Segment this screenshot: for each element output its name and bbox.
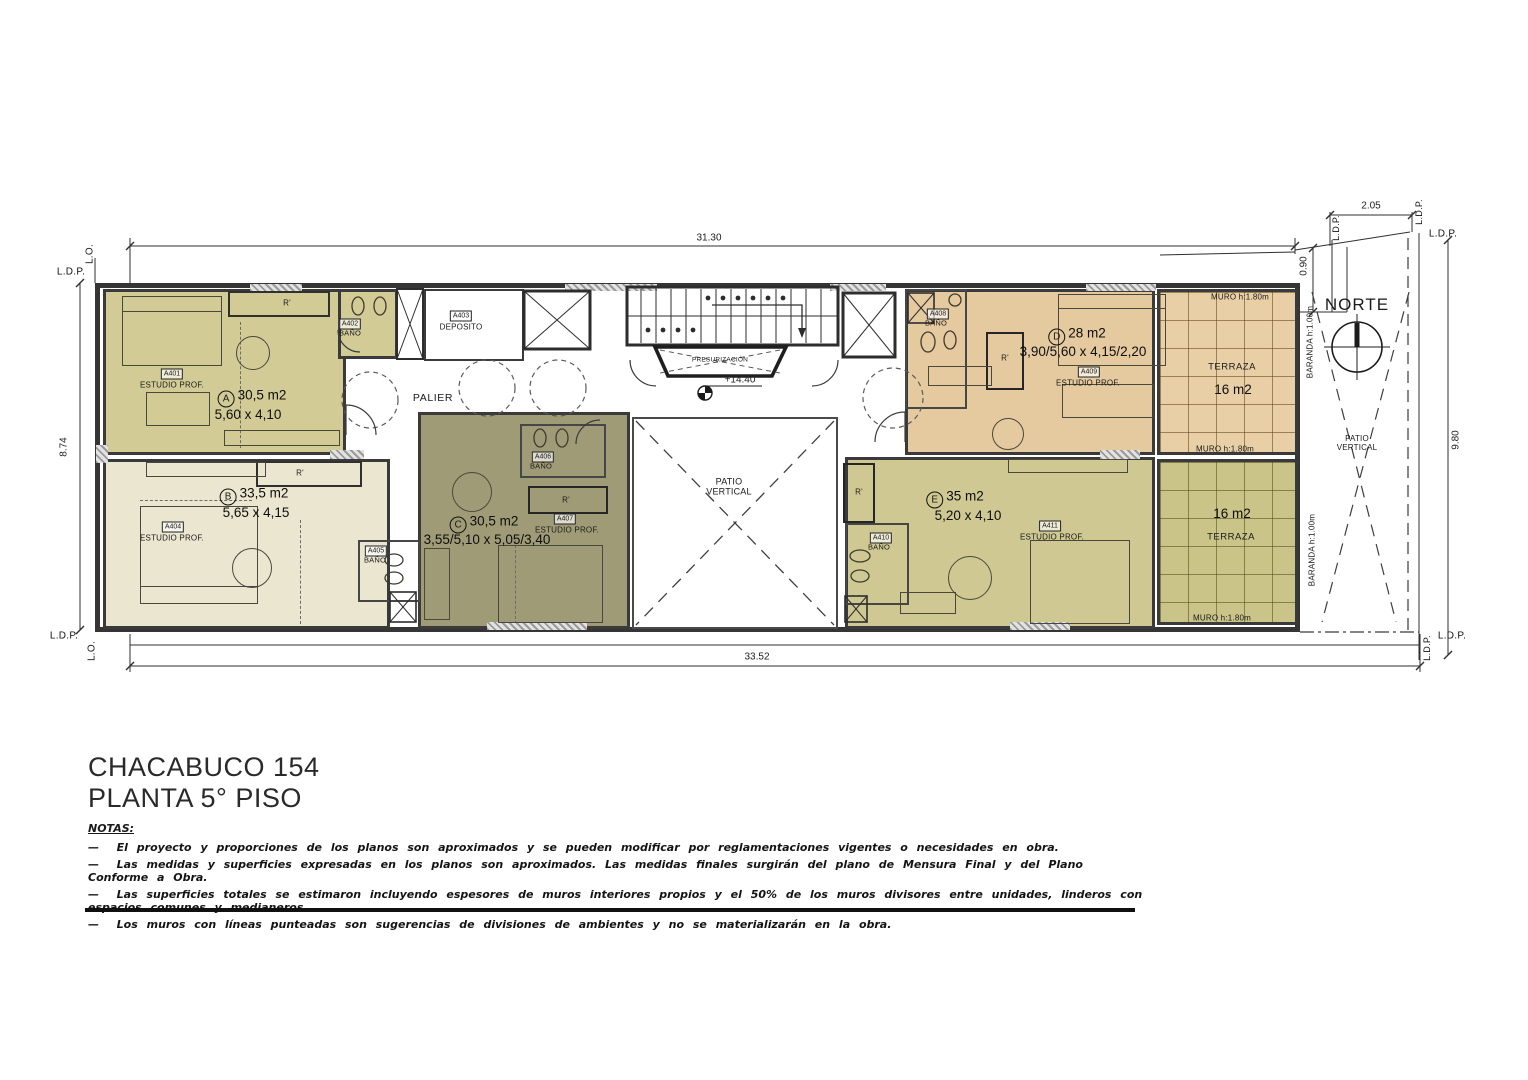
- unit-d-bath-partition: [905, 289, 967, 409]
- unit-b-closet: [256, 461, 362, 487]
- unit-d-dims: 3,90/5,60 x 4,15/2,20: [1020, 344, 1147, 360]
- table: [452, 472, 492, 512]
- project-address: CHACABUCO 154: [88, 752, 320, 783]
- lo-label-top-left: L.O.: [85, 244, 96, 264]
- patio-vertical-right-label: PATIO VERTICAL: [1328, 434, 1386, 452]
- unit-b-tag: A404: [162, 522, 184, 533]
- wall-hatch: [565, 284, 657, 291]
- tv-cabinet: [1008, 459, 1128, 473]
- muro-label-middle: MURO h:1.80m: [1196, 444, 1254, 453]
- unit-a-letter: A: [218, 391, 235, 408]
- unit-d-title: D28 m2: [1048, 325, 1106, 346]
- tv-cabinet: [146, 462, 266, 477]
- wall-hatch: [1100, 450, 1140, 459]
- table: [992, 418, 1024, 450]
- dim-left-height: 8.74: [59, 437, 70, 456]
- dashed-division: [300, 520, 301, 624]
- level-marker-label: +14.40: [725, 374, 756, 386]
- unit-e-letter: E: [926, 492, 943, 509]
- baranda-label-top: BARANDA h:1.00m: [1306, 306, 1315, 378]
- unit-c-dims: 3,55/5,10 x 5,05/3,40: [424, 532, 551, 548]
- unit-a-tag: A401: [161, 369, 183, 380]
- patio-vertical-central-label: PATIO VERTICAL: [700, 477, 758, 498]
- unit-c-tag: A407: [554, 514, 576, 525]
- note-line: — Los muros con líneas punteadas son sug…: [88, 918, 1148, 931]
- presurizacion-label: PRESURIZACIÓN: [692, 356, 748, 363]
- unit-d-bath-label: BAÑO: [925, 320, 947, 329]
- unit-e-bath-label: BAÑO: [868, 544, 890, 553]
- terrace-bottom-label: TERRAZA: [1207, 533, 1255, 544]
- muro-label-bottom: MURO h:1.80m: [1193, 613, 1251, 622]
- unit-e-dims: 5,20 x 4,10: [935, 508, 1002, 524]
- drawing-sheet: { "title_block": { "address": "CHACABUCO…: [0, 0, 1528, 1080]
- ldp-label-bottom-right-h: L.D.P.: [1438, 630, 1466, 642]
- muro-label-top: MURO h:1.80m: [1211, 292, 1269, 301]
- unit-a-title: A30,5 m2: [218, 387, 287, 408]
- dim-bottom-width: 33.52: [744, 651, 769, 663]
- unit-d-closet-label: R': [1001, 353, 1009, 362]
- kitchen-counter: [900, 592, 956, 614]
- lo-label-bottom-left: L.O.: [87, 641, 98, 661]
- unit-d-room-label: ESTUDIO PROF.: [1056, 378, 1120, 387]
- terrace-top-area: 16 m2: [1214, 382, 1252, 398]
- terrace-top-label: TERRAZA: [1208, 363, 1256, 374]
- unit-b-bath-label: BAÑO: [364, 557, 386, 566]
- dim-setback: 0.90: [1299, 256, 1310, 275]
- ldp-label-bottom-right-v: L.D.P.: [1422, 635, 1432, 661]
- wall-hatch: [330, 450, 364, 459]
- notes-block: NOTAS: — El proyecto y proporciones de l…: [88, 822, 1148, 935]
- notes-heading: NOTAS:: [88, 822, 1148, 835]
- unit-c-closet-label: R': [562, 495, 570, 504]
- unit-b-room-label: ESTUDIO PROF.: [140, 533, 204, 542]
- deposito-label: DEPOSITO: [440, 322, 483, 331]
- unit-d-tag: A409: [1078, 367, 1100, 378]
- palier-label: PALIER: [413, 392, 453, 404]
- desk: [146, 392, 210, 426]
- note-line: — Las medidas y superficies expresadas e…: [88, 858, 1148, 884]
- wall-hatch: [250, 284, 302, 291]
- bed: [1030, 540, 1130, 624]
- ldp-label-top-left: L.D.P.: [57, 266, 85, 278]
- unit-a-room-label: ESTUDIO PROF.: [140, 380, 204, 389]
- unit-c-title: C30,5 m2: [450, 513, 519, 534]
- wall-hatch: [1086, 284, 1156, 291]
- unit-b-title: B33,5 m2: [220, 485, 289, 506]
- table: [236, 336, 270, 370]
- deposito-tag: A403: [450, 311, 472, 322]
- unit-e-closet-label: R': [855, 487, 863, 496]
- unit-e-tag: A411: [1039, 521, 1061, 532]
- ldp-label-bottom-left: L.D.P.: [50, 630, 78, 642]
- terrace-bottom-area: 16 m2: [1213, 506, 1251, 522]
- dim-top-width: 31.30: [696, 232, 721, 244]
- ldp-label-top-right: L.D.P.: [1429, 228, 1457, 240]
- floor-title: PLANTA 5° PISO: [88, 783, 320, 814]
- unit-a-dims: 5,60 x 4,10: [215, 407, 282, 423]
- unit-c-room-label: ESTUDIO PROF.: [535, 525, 599, 534]
- central-patio: [632, 417, 838, 629]
- dim-notch-width: 2.05: [1361, 200, 1380, 212]
- wall-hatch: [96, 445, 108, 463]
- kitchen-counter: [224, 430, 340, 446]
- ldp-label-notch-right: L.D.P.: [1414, 199, 1424, 225]
- unit-a-closet: [228, 291, 330, 317]
- sofa: [424, 548, 450, 620]
- kitchen-counter: [928, 366, 992, 386]
- table: [232, 548, 272, 588]
- unit-c-letter: C: [450, 517, 467, 534]
- unit-b-closet-label: R': [296, 468, 304, 477]
- wall-hatch: [487, 622, 587, 630]
- wall-hatch: [830, 284, 886, 291]
- baranda-label-bottom: BARANDA h:1.00m: [1308, 514, 1317, 586]
- unit-c-bath-label: BAÑO: [530, 463, 552, 472]
- notes-rule: [85, 908, 1135, 912]
- north-label: NORTE: [1325, 295, 1389, 315]
- bed: [498, 545, 603, 623]
- desk: [1062, 384, 1154, 418]
- title-block: CHACABUCO 154 PLANTA 5° PISO: [88, 752, 320, 814]
- bed: [122, 296, 222, 366]
- unit-a-bath-label: BAÑO: [339, 330, 361, 339]
- note-line: — El proyecto y proporciones de los plan…: [88, 841, 1148, 854]
- unit-b-letter: B: [220, 489, 237, 506]
- unit-e-title: E35 m2: [926, 488, 984, 509]
- dim-right-height: 9.80: [1451, 430, 1462, 449]
- unit-d-letter: D: [1048, 329, 1065, 346]
- unit-a-closet-label: R': [283, 298, 291, 307]
- ldp-label-notch-left: L.D.P.: [1331, 215, 1341, 241]
- unit-b-dims: 5,65 x 4,15: [223, 505, 290, 521]
- unit-e-room-label: ESTUDIO PROF.: [1020, 532, 1084, 541]
